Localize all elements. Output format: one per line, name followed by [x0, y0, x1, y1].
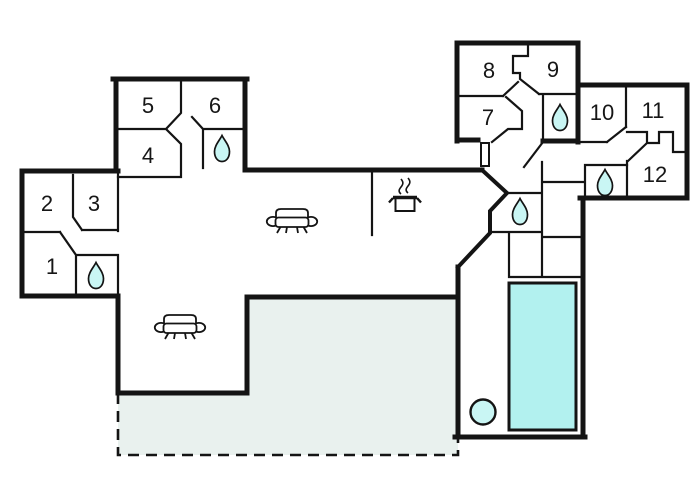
- room-label-11: 11: [642, 98, 665, 123]
- room-label-9: 9: [547, 57, 559, 82]
- floor-plan-page: 1 2 3 4 5 6 7 8 9 10 11 12: [0, 0, 700, 500]
- room-label-10: 10: [590, 100, 614, 125]
- pool: [509, 283, 576, 430]
- floor-plan: 1 2 3 4 5 6 7 8 9 10 11 12: [0, 0, 700, 500]
- room-label-7: 7: [482, 105, 494, 130]
- room-label-2: 2: [41, 191, 53, 216]
- room-label-4: 4: [142, 143, 154, 168]
- room-label-5: 5: [142, 93, 154, 118]
- room-label-6: 6: [209, 93, 221, 118]
- room-label-3: 3: [88, 191, 100, 216]
- hot-tub-icon: [471, 400, 496, 425]
- room-label-12: 12: [643, 162, 667, 187]
- door-marker: [481, 143, 489, 166]
- room-label-1: 1: [46, 254, 58, 279]
- room-label-8: 8: [483, 58, 495, 83]
